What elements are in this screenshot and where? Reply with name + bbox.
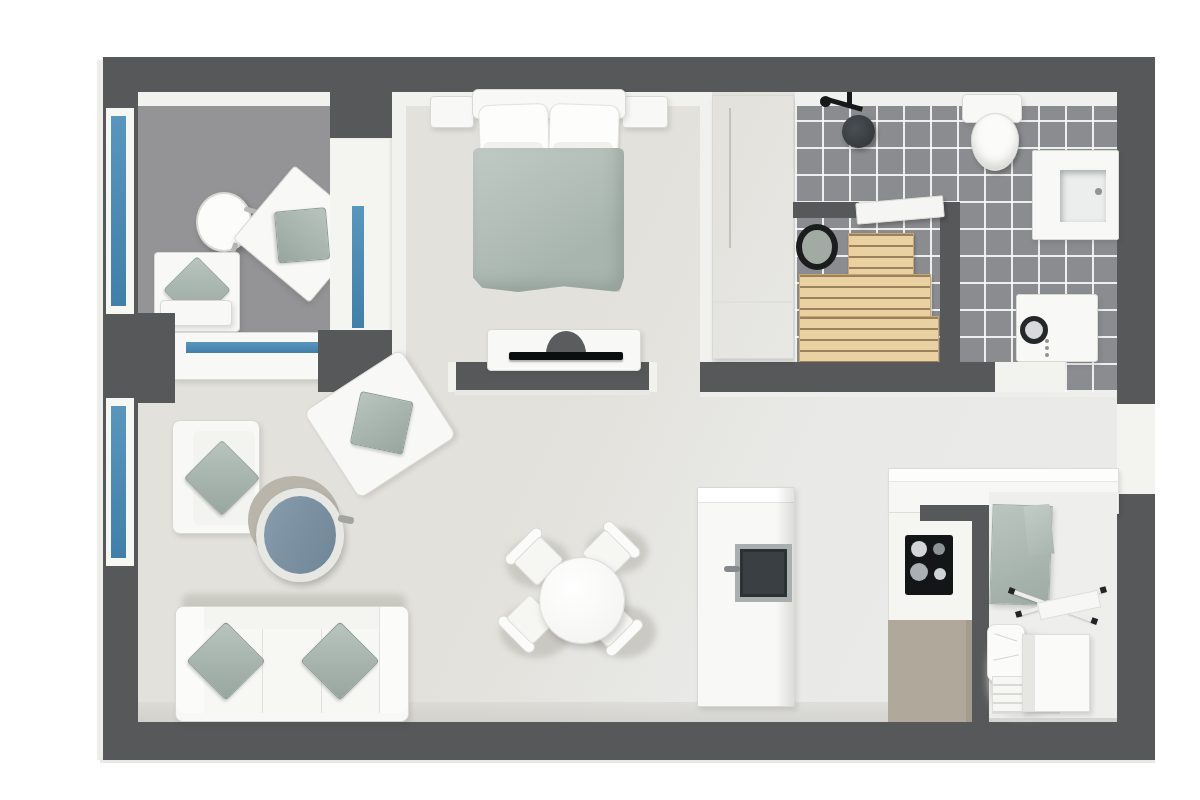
pillow-crease — [994, 633, 1017, 641]
utility-pillow — [987, 624, 1025, 682]
stone-counter-upper — [1023, 504, 1054, 556]
box-side-face — [1023, 635, 1035, 711]
pillow-crease — [993, 654, 1019, 660]
sink-box — [1022, 634, 1090, 712]
floor-plan-canvas — [0, 0, 1200, 800]
room-utility — [0, 0, 1200, 800]
